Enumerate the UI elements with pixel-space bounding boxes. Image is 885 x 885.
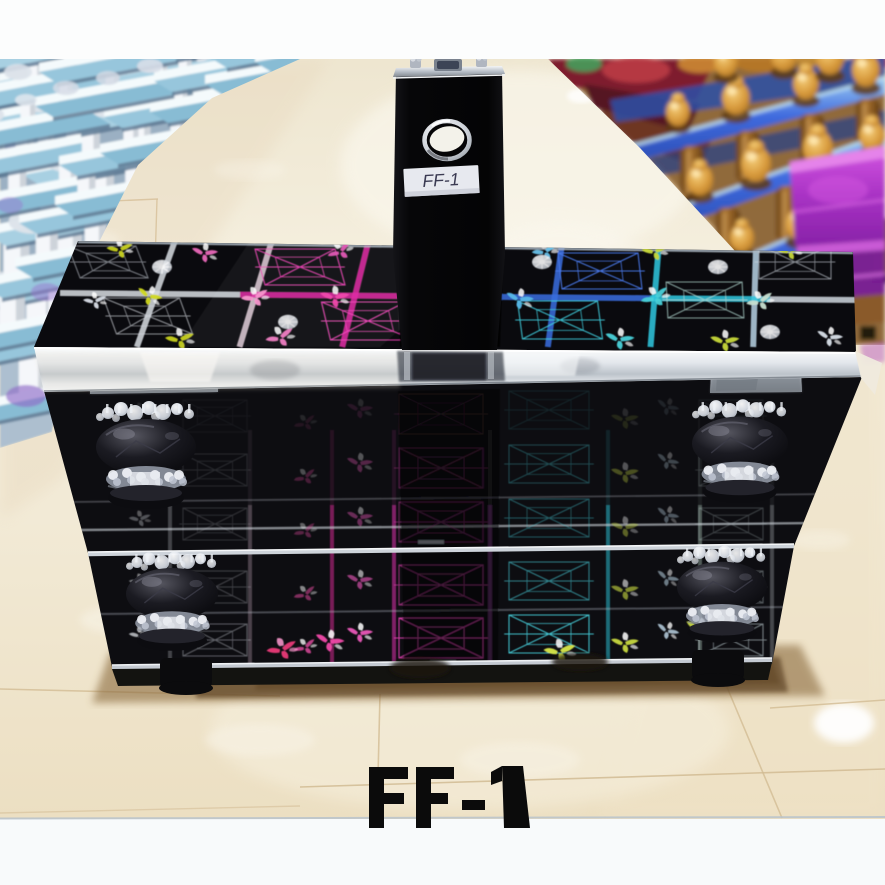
svg-text:FF-1: FF-1 (422, 169, 460, 191)
